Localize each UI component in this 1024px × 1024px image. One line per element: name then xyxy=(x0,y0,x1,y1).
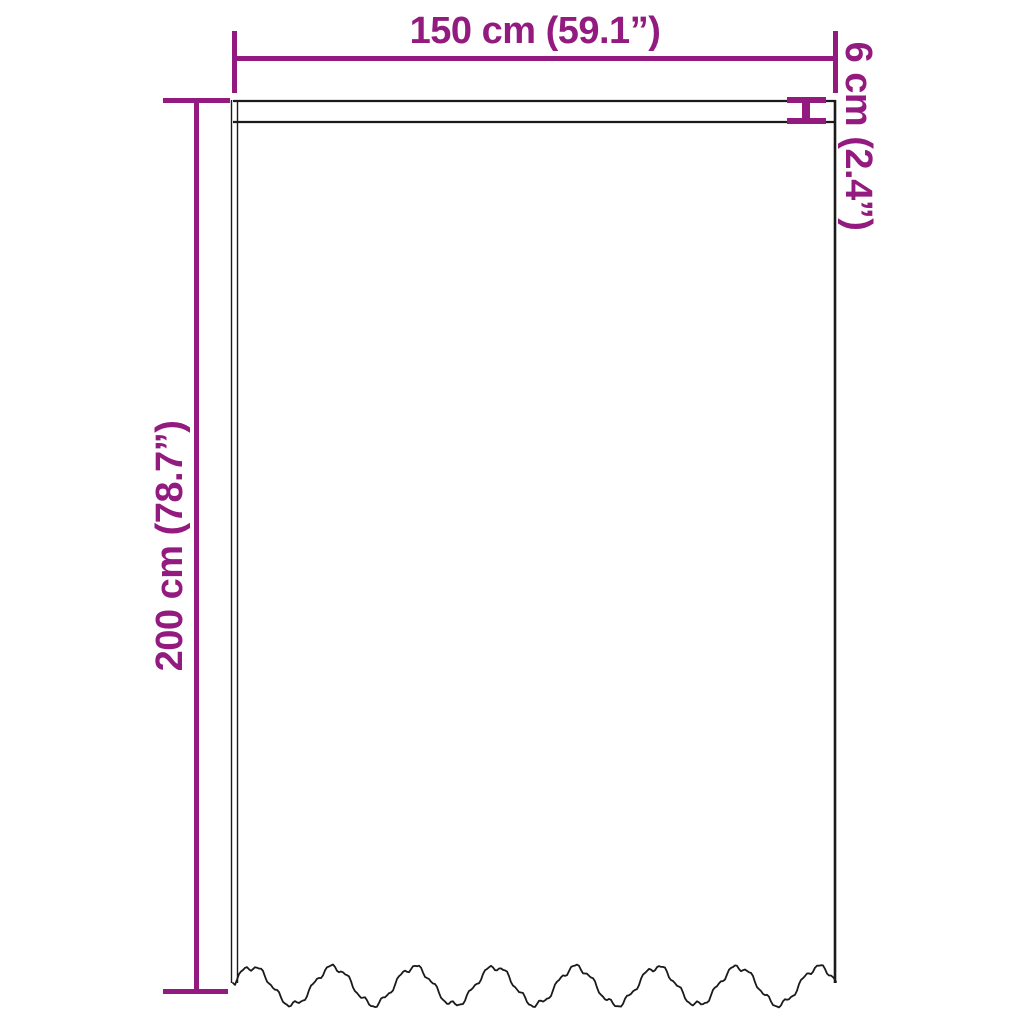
dimension-diagram: 150 cm (59.1”) 200 cm (78.7”) 6 cm (2.4”… xyxy=(0,0,1024,1024)
header-dimension-line xyxy=(802,97,810,124)
width-dimension-label: 150 cm (59.1”) xyxy=(410,12,661,50)
height-dimension-line xyxy=(194,100,199,992)
height-dimension-tick-bottom xyxy=(163,989,228,994)
width-dimension-tick-left xyxy=(232,31,237,93)
width-dimension-line xyxy=(234,56,835,61)
height-dimension-tick-top xyxy=(163,98,230,103)
curtain-wavy-hem xyxy=(233,965,836,1008)
height-dimension-label: 200 cm (78.7”) xyxy=(151,421,189,672)
header-dimension-label: 6 cm (2.4”) xyxy=(839,42,877,231)
